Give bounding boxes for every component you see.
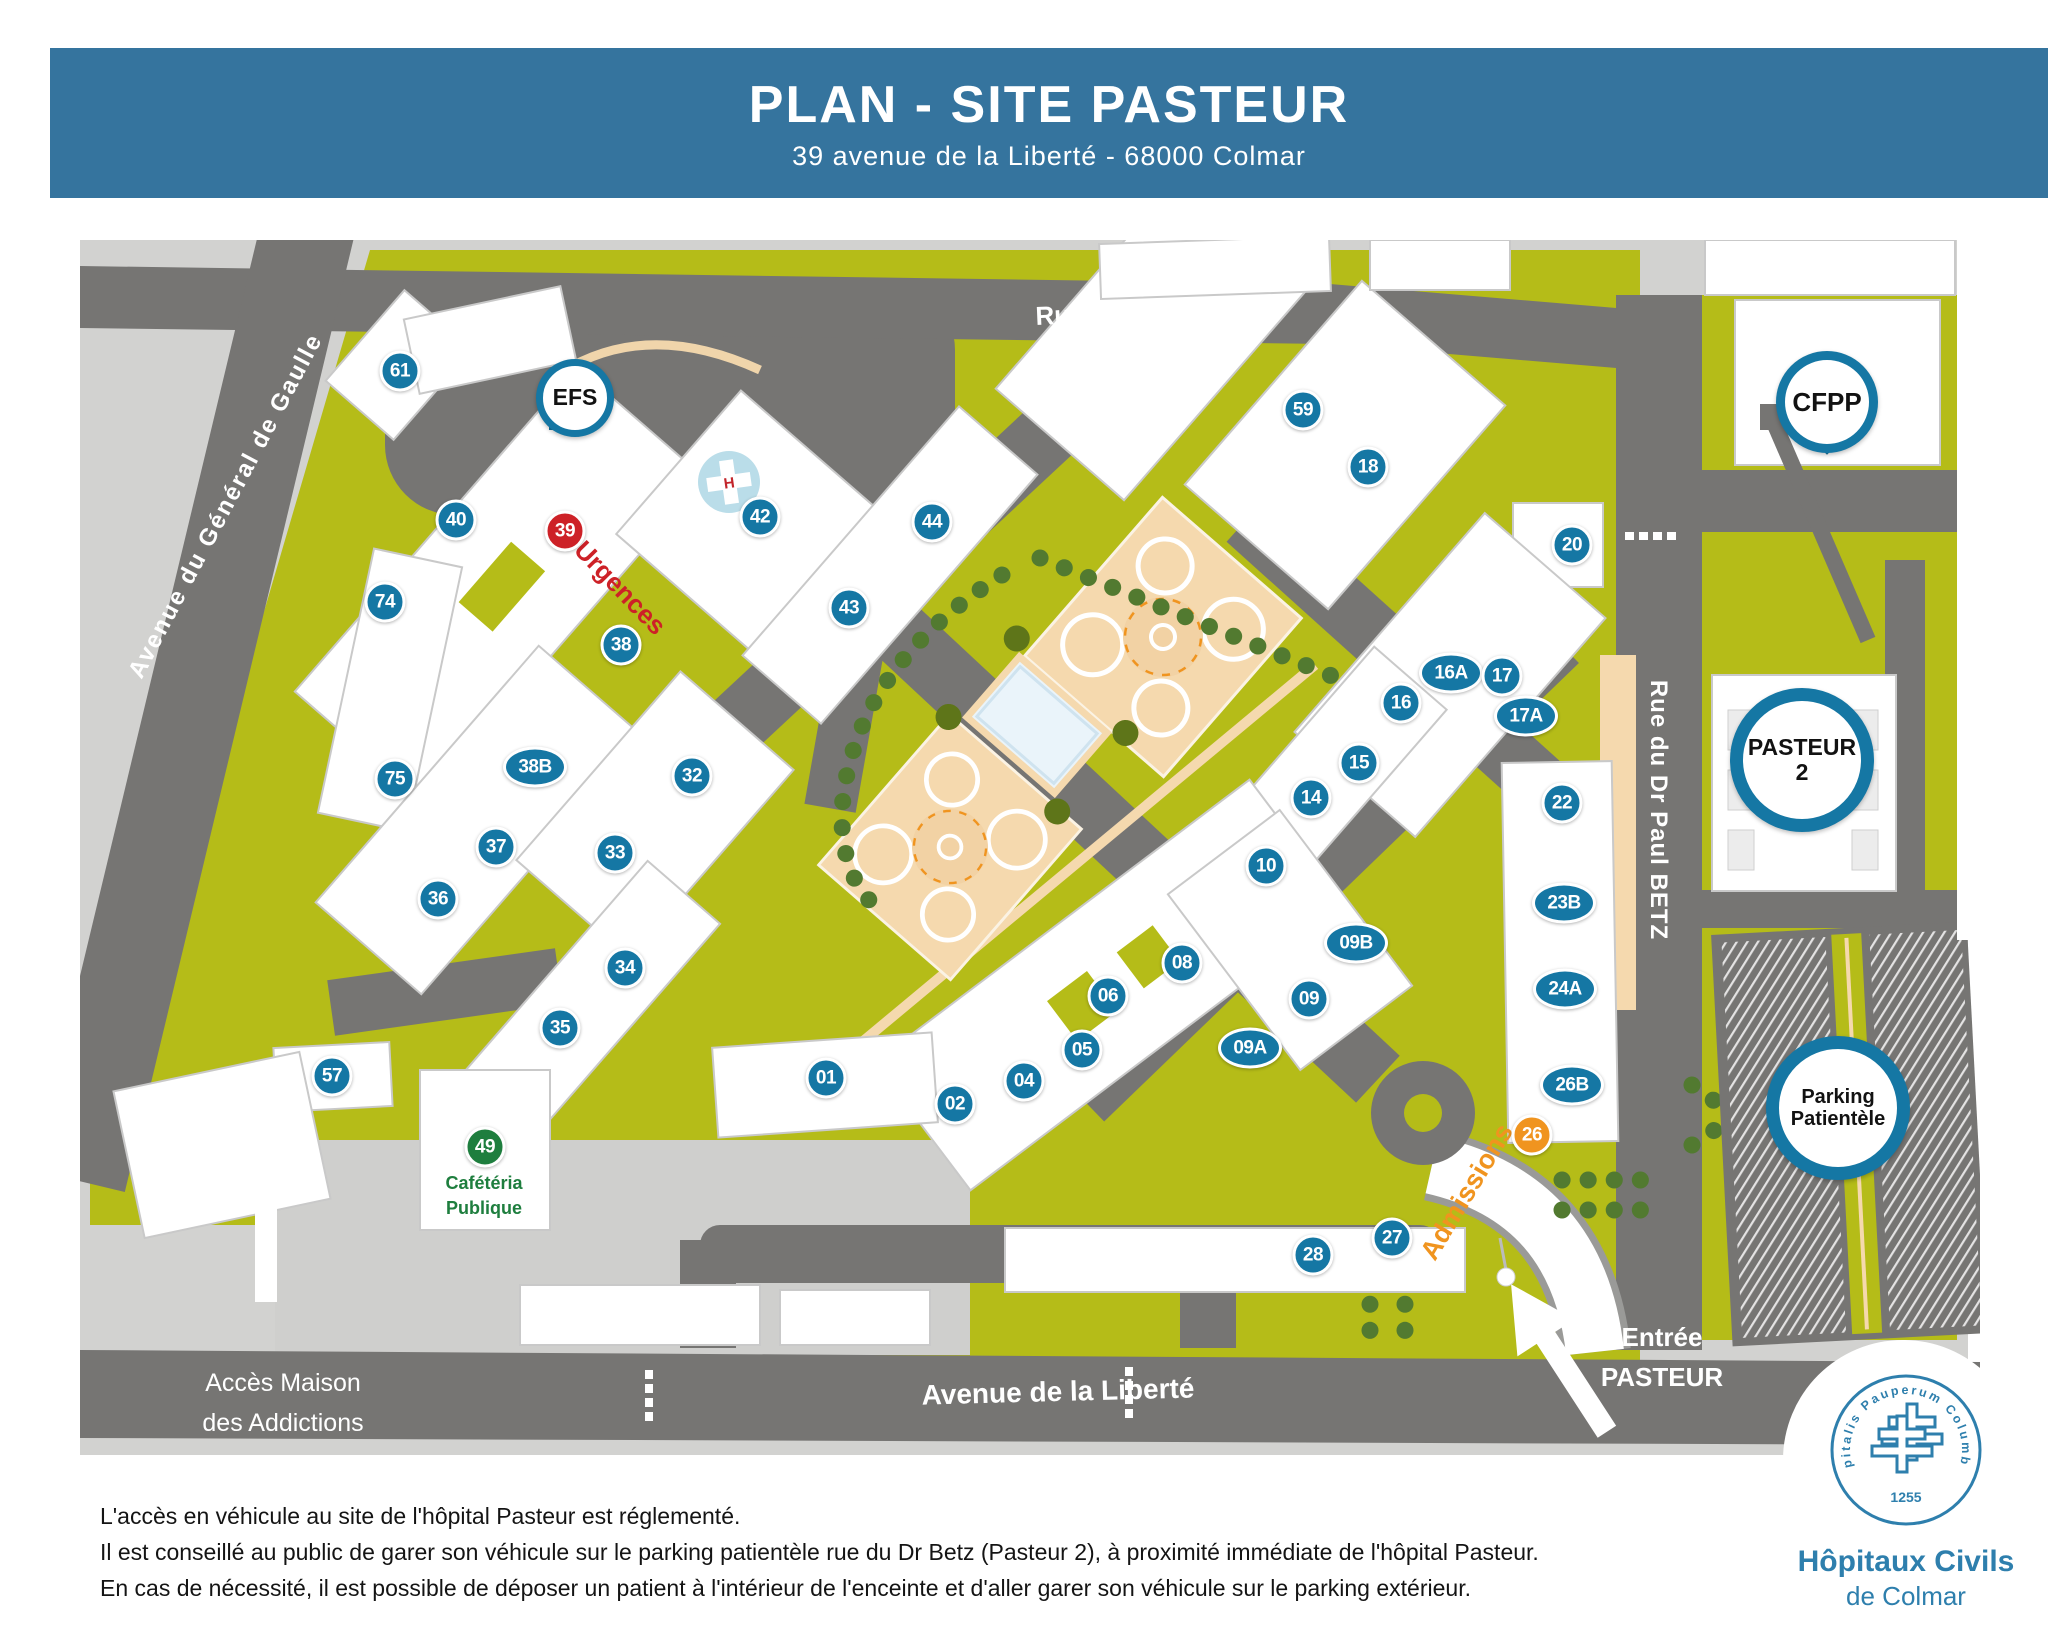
building-marker-05: 05 (1062, 1030, 1103, 1071)
building-marker-42: 42 (740, 497, 781, 538)
building-marker-44: 44 (912, 502, 953, 543)
acces-line1: Accès Maison (202, 1363, 363, 1403)
building-marker-61: 61 (380, 351, 421, 392)
building-marker-27: 27 (1372, 1218, 1413, 1259)
building-marker-40: 40 (436, 500, 477, 541)
parking-pin: ParkingPatientèle (1766, 1036, 1910, 1180)
building-marker-59: 59 (1283, 390, 1324, 431)
page-title: PLAN - SITE PASTEUR (749, 75, 1349, 135)
building-marker-33: 33 (595, 833, 636, 874)
header-banner: PLAN - SITE PASTEUR 39 avenue de la Libe… (50, 48, 2048, 198)
building-marker-26B: 26B (1540, 1065, 1604, 1106)
building-marker-10: 10 (1246, 846, 1287, 887)
plan-site-pasteur-page: PLAN - SITE PASTEUR 39 avenue de la Libe… (0, 0, 2048, 1628)
cfpp-pin-label: CFPP (1776, 351, 1878, 453)
footer-notice: L'accès en véhicule au site de l'hôpital… (100, 1498, 1539, 1606)
hopitaux-civils-seal-icon: Hospitalis Pauperum Columbaria 1255 (1796, 1340, 2016, 1560)
building-marker-17A: 17A (1494, 696, 1558, 737)
building-marker-15: 15 (1339, 743, 1380, 784)
cafeteria-line2: Publique (445, 1196, 522, 1221)
acces-line2: des Addictions (202, 1403, 363, 1443)
building-marker-32: 32 (672, 756, 713, 797)
footer-line3: En cas de nécessité, il est possible de … (100, 1570, 1539, 1606)
cafeteria-line1: Cafétéria (445, 1171, 522, 1196)
access-maison-addictions-label: Accès Maison des Addictions (202, 1363, 363, 1443)
page-subtitle: 39 avenue de la Liberté - 68000 Colmar (792, 141, 1306, 172)
building-marker-23B: 23B (1532, 883, 1596, 924)
logo-line1: Hôpitaux Civils (1798, 1545, 2015, 1579)
building-marker-22: 22 (1542, 783, 1583, 824)
entree-line1: Entrée (1601, 1317, 1723, 1357)
building-marker-20: 20 (1552, 525, 1593, 566)
street-label-betz: Rue du Dr Paul BETZ (1644, 680, 1672, 940)
building-marker-38B: 38B (503, 747, 567, 788)
building-marker-34: 34 (605, 948, 646, 989)
building-marker-26: 26 (1512, 1115, 1553, 1156)
building-marker-75: 75 (375, 759, 416, 800)
building-marker-09: 09 (1289, 979, 1330, 1020)
footer-line1: L'accès en véhicule au site de l'hôpital… (100, 1498, 1539, 1534)
site-map-graphic: H (80, 240, 1980, 1455)
footer-line2: Il est conseillé au public de garer son … (100, 1534, 1539, 1570)
parking-pin-text: Parking (1801, 1086, 1874, 1108)
building-marker-09A: 09A (1218, 1028, 1282, 1069)
efs-pin-label: EFS (536, 359, 614, 437)
building-marker-74: 74 (365, 582, 406, 623)
logo-line2: de Colmar (1798, 1581, 2015, 1612)
parking-pin-text: Patientèle (1791, 1108, 1885, 1130)
building-marker-02: 02 (935, 1084, 976, 1125)
building-marker-35: 35 (540, 1008, 581, 1049)
efs-pin: EFS (536, 359, 614, 437)
pasteur2-pin-label: PASTEUR2 (1730, 688, 1874, 832)
building-marker-39: 39 (545, 511, 586, 552)
building-marker-24A: 24A (1533, 969, 1597, 1010)
building-marker-38: 38 (601, 625, 642, 666)
pasteur2-pin: PASTEUR2 (1730, 688, 1874, 832)
building-marker-09B: 09B (1324, 923, 1388, 964)
building-marker-08: 08 (1162, 943, 1203, 984)
building-marker-01: 01 (806, 1058, 847, 1099)
building-marker-18: 18 (1348, 447, 1389, 488)
building-marker-04: 04 (1004, 1061, 1045, 1102)
building-marker-37: 37 (476, 827, 517, 868)
cafeteria-publique-label: Cafétéria Publique (445, 1171, 522, 1221)
efs-pin-text: EFS (553, 385, 598, 410)
building-marker-49: 49 (465, 1127, 506, 1168)
entree-pasteur-label: Entrée PASTEUR (1601, 1317, 1723, 1397)
building-marker-36: 36 (418, 879, 459, 920)
building-marker-28: 28 (1293, 1235, 1334, 1276)
seal-year: 1255 (1890, 1489, 1921, 1505)
building-marker-06: 06 (1088, 976, 1129, 1017)
building-marker-16A: 16A (1419, 653, 1483, 694)
building-marker-14: 14 (1291, 778, 1332, 819)
entree-line2: PASTEUR (1601, 1357, 1723, 1397)
building-marker-57: 57 (312, 1056, 353, 1097)
pasteur2-pin-text: PASTEUR (1748, 735, 1856, 760)
cfpp-pin: CFPP (1776, 351, 1878, 453)
pasteur2-pin-text: 2 (1796, 760, 1809, 785)
building-marker-17: 17 (1482, 656, 1523, 697)
building-marker-16: 16 (1381, 683, 1422, 724)
building-marker-43: 43 (829, 588, 870, 629)
parking-pin-label: ParkingPatientèle (1766, 1036, 1910, 1180)
cfpp-pin-text: CFPP (1792, 388, 1861, 417)
logo-wordmark: Hôpitaux Civils de Colmar (1798, 1545, 2015, 1612)
